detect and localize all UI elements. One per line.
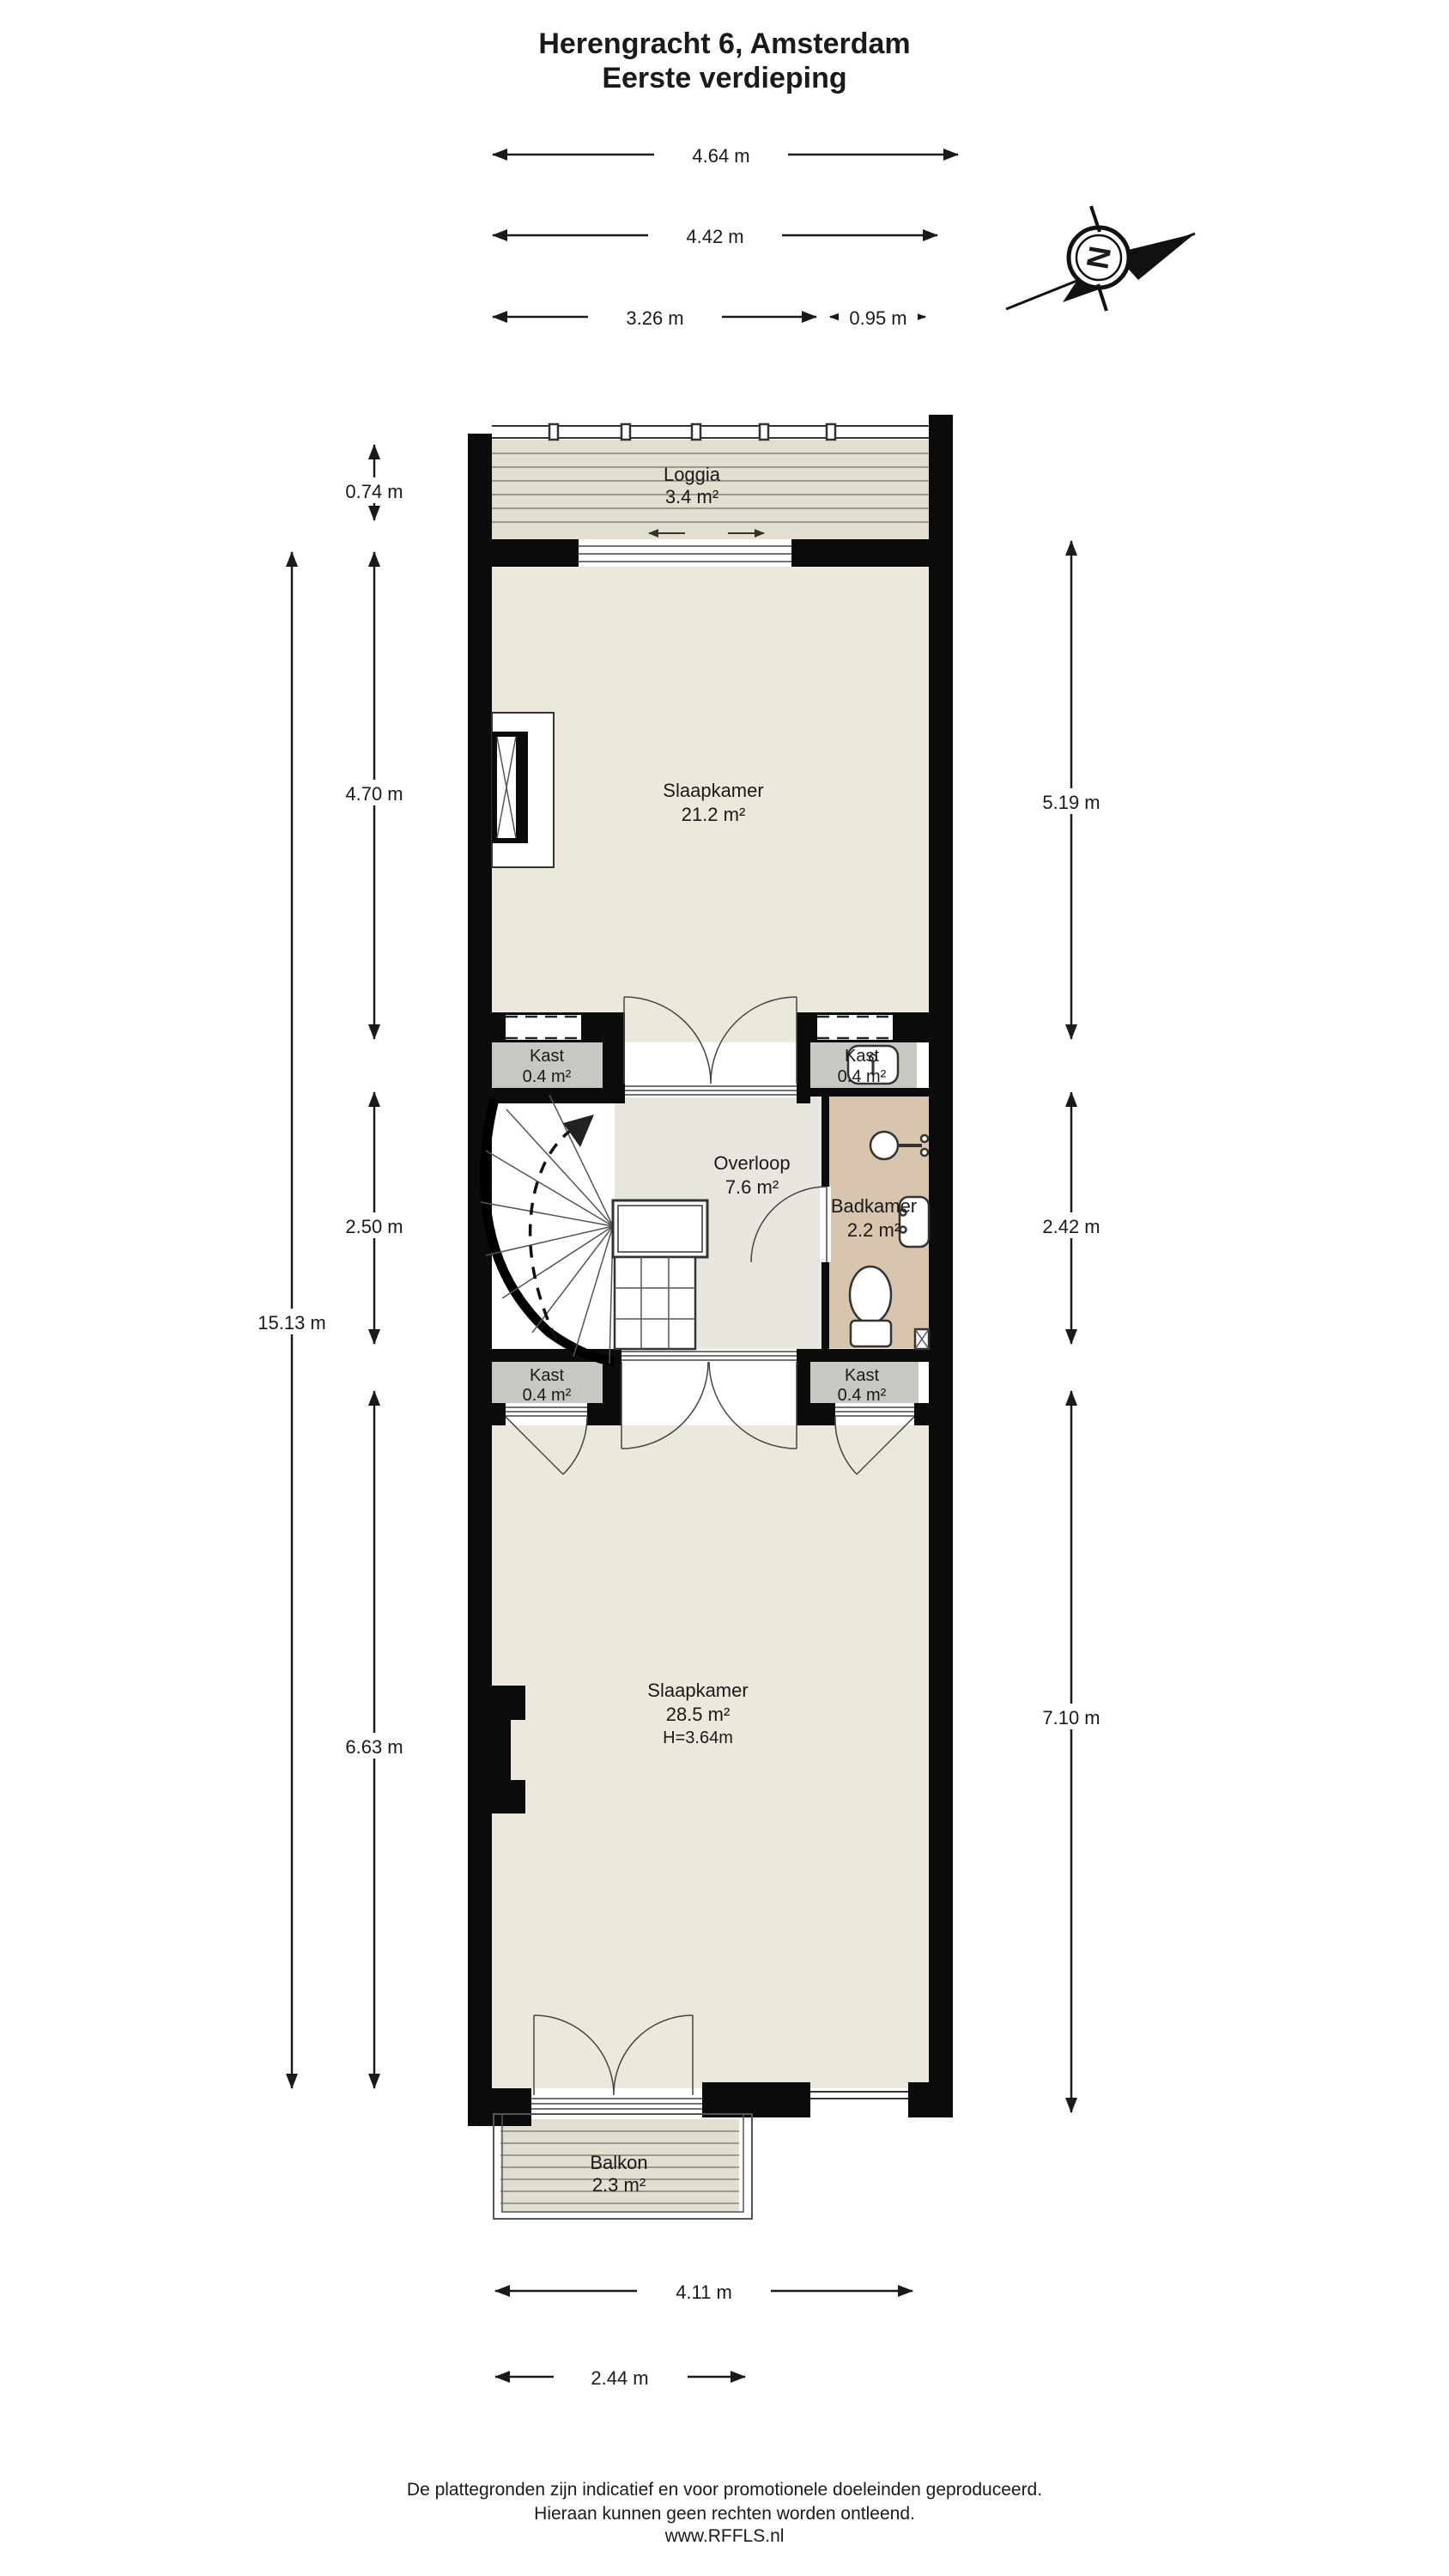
room-area-closet-br: 0.4 m² [838,1386,887,1405]
room-label-bedroom1: Slaapkamer [663,780,763,801]
room-label-bathroom: Badkamer [831,1195,917,1217]
room-label-landing: Overloop [713,1152,790,1174]
footer-website: www.RFFLS.nl [664,2526,785,2546]
room-area-bedroom1: 21.2 m² [682,804,746,825]
dim-top-3: 0.95 m [849,307,906,329]
room-height-bedroom2: H=3.64m [663,1728,733,1747]
room-area-bathroom: 2.2 m² [847,1219,900,1241]
footer-line1: De plattegronden zijn indicatief en voor… [407,2480,1042,2500]
dim-left-0: 0.74 m [345,481,403,502]
title-line2: Eerste verdieping [602,62,846,94]
dim-left-3: 6.63 m [345,1736,403,1758]
footer-line2: Hieraan kunnen geen rechten worden ontle… [534,2504,915,2524]
room-area-loggia: 3.4 m² [665,486,718,507]
dim-top-1: 4.42 m [686,226,743,247]
title-line1: Herengracht 6, Amsterdam [538,27,910,60]
toilet-icon [850,1267,891,1346]
dim-top-0: 4.64 m [692,145,749,167]
room-label-closet-br: Kast [845,1366,879,1385]
fireplace-icon [492,713,554,867]
stairwell-floor [492,1103,615,1349]
room-area-closet-tl: 0.4 m² [523,1067,572,1086]
dim-left-4: 15.13 m [258,1312,326,1334]
dim-bottom-1: 2.44 m [591,2367,648,2389]
room-area-closet-bl: 0.4 m² [523,1386,572,1405]
room-area-landing: 7.6 m² [725,1176,779,1198]
dim-right-1: 2.42 m [1042,1216,1100,1237]
page-title: Herengracht 6, Amsterdam Eerste verdiepi… [538,27,910,94]
straight-stairs [615,1257,695,1349]
dim-left-1: 4.70 m [345,783,403,805]
room-label-closet-tr: Kast [845,1047,879,1066]
footer-disclaimer: De plattegronden zijn indicatief en voor… [407,2480,1042,2546]
dim-right-2: 7.10 m [1042,1707,1100,1728]
loggia-railing [492,424,929,440]
vent-icon [915,1329,929,1349]
dim-right-0: 5.19 m [1042,792,1100,813]
rear-window [810,2092,908,2099]
room-area-bedroom2: 28.5 m² [666,1704,731,1725]
room-area-closet-tr: 0.4 m² [838,1067,887,1086]
stair-landing [613,1200,707,1257]
bedroom2-floor [492,1425,929,2088]
room-label-loggia: Loggia [664,464,721,485]
dim-bottom-0: 4.11 m [676,2281,732,2303]
floorplan-canvas: Herengracht 6, Amsterdam Eerste verdiepi… [0,0,1449,2576]
room-label-closet-tl: Kast [530,1047,564,1066]
room-label-bedroom2: Slaapkamer [647,1680,748,1701]
north-compass-icon: N [1006,206,1195,311]
room-label-balcony: Balkon [590,2152,647,2173]
room-area-balcony: 2.3 m² [592,2174,646,2196]
dim-left-2: 2.50 m [345,1216,403,1237]
dim-top-2: 3.26 m [626,307,683,329]
room-label-closet-bl: Kast [530,1366,564,1385]
